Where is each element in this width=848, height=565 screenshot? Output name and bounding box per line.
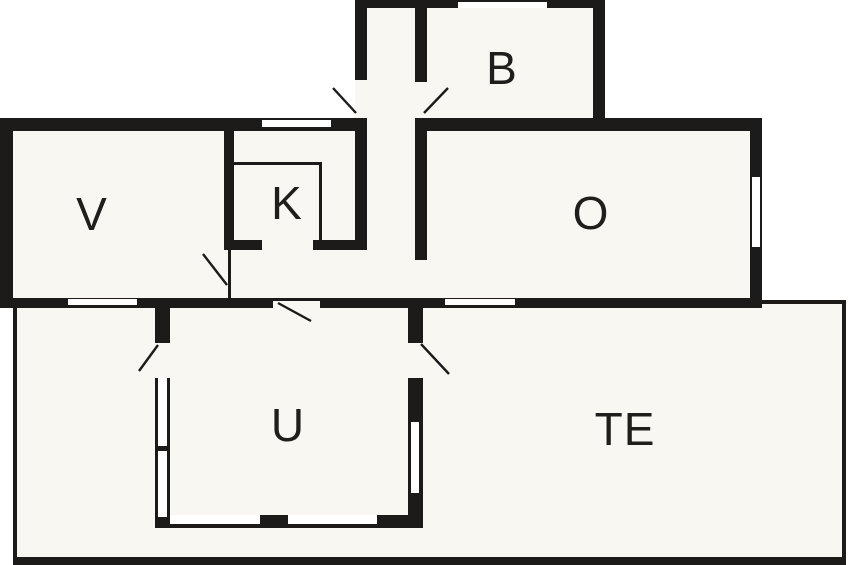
door-swing-v: [203, 254, 227, 285]
door-swing-layer: [0, 0, 848, 565]
floorplan-canvas: VKBOUTE: [0, 0, 848, 565]
door-swing-u-top: [278, 303, 311, 321]
door-swing-u-left: [139, 345, 158, 371]
room-label-v: V: [76, 191, 108, 237]
room-label-b: B: [486, 45, 518, 91]
door-swing-bath: [424, 88, 448, 113]
room-label-te: TE: [595, 406, 656, 452]
door-swing-entrance: [333, 88, 356, 113]
room-label-o: O: [573, 190, 610, 236]
door-swing-u-right: [421, 344, 449, 374]
room-label-k: K: [271, 180, 303, 226]
room-label-u: U: [271, 402, 305, 448]
